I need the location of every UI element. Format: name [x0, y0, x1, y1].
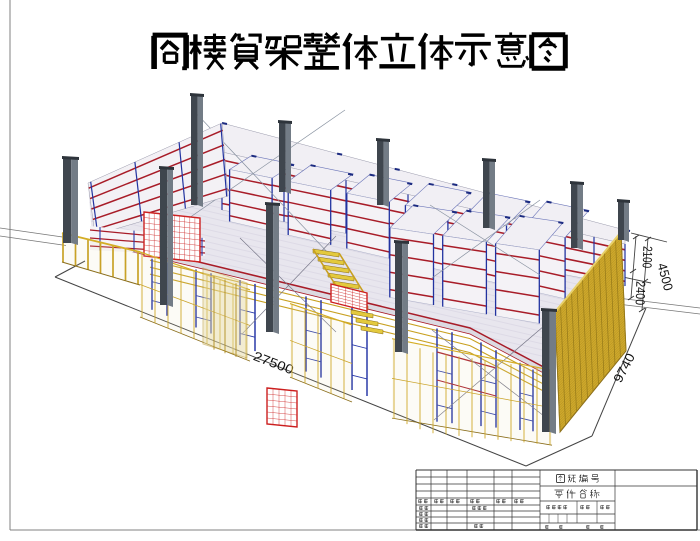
svg-text:2100: 2100	[640, 246, 656, 269]
svg-text:2400: 2400	[633, 281, 649, 306]
